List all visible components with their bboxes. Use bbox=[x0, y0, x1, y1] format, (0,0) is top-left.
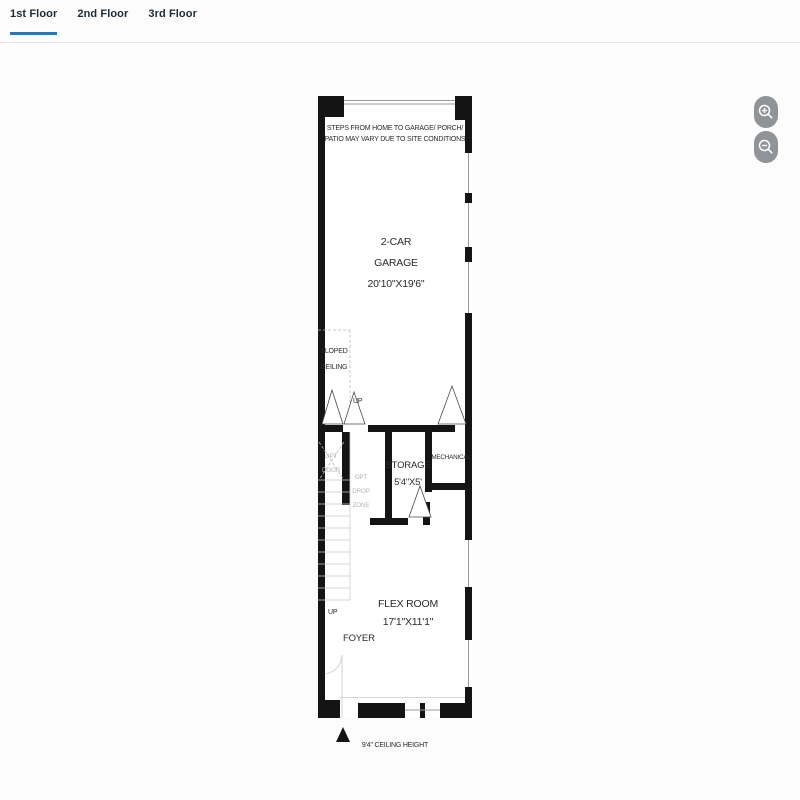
zoom-out-icon bbox=[757, 138, 775, 156]
garage-dimensions: 20'10"X19'6" bbox=[368, 278, 425, 290]
zoom-in-button[interactable] bbox=[754, 96, 778, 128]
foyer-label: FOYER bbox=[343, 633, 375, 644]
garage-label-line2: GARAGE bbox=[374, 257, 418, 269]
ceiling-height-label: 9'4" CEILING HEIGHT bbox=[362, 742, 429, 749]
entry-arrow bbox=[336, 727, 350, 742]
opt-drop-zone-label-line2: DROP bbox=[352, 488, 369, 495]
floorplan-canvas: STEPS FROM HOME TO GARAGE/ PORCH/ PATIO … bbox=[300, 90, 480, 755]
disclaimer-line2: PATIO MAY VARY DUE TO SITE CONDITIONS bbox=[325, 136, 466, 143]
up-label-garage: UP bbox=[353, 398, 363, 405]
zoom-out-button[interactable] bbox=[754, 131, 778, 163]
opt-door-label-line1: OPT bbox=[325, 453, 338, 460]
sloped-ceiling-label-line2: CEILING bbox=[321, 364, 348, 371]
flex-room-label: FLEX ROOM bbox=[378, 598, 438, 610]
tab-2nd-floor[interactable]: 2nd Floor bbox=[77, 8, 128, 32]
up-label-foyer: UP bbox=[328, 609, 338, 616]
tab-1st-floor[interactable]: 1st Floor bbox=[10, 8, 57, 32]
sloped-ceiling-label-line1: SLOPED bbox=[320, 348, 347, 355]
opt-drop-zone-label-line1: OPT bbox=[355, 474, 368, 481]
tab-bar-divider bbox=[0, 42, 800, 43]
storage-dimensions: 5'4"X5' bbox=[394, 477, 422, 488]
garage-label-line1: 2-CAR bbox=[381, 236, 412, 248]
disclaimer-line1: STEPS FROM HOME TO GARAGE/ PORCH/ bbox=[327, 125, 464, 132]
flex-room-dimensions: 17'1"X11'1" bbox=[383, 616, 434, 628]
floorplan-svg: STEPS FROM HOME TO GARAGE/ PORCH/ PATIO … bbox=[300, 90, 480, 755]
zoom-in-icon bbox=[757, 103, 775, 121]
zoom-controls bbox=[754, 96, 778, 163]
mechanical-label: MECHANICAL bbox=[431, 454, 471, 461]
opt-drop-zone-label-line3: ZONE bbox=[353, 502, 370, 509]
storage-label: STORAGE bbox=[386, 460, 431, 471]
tab-3rd-floor[interactable]: 3rd Floor bbox=[148, 8, 197, 32]
opt-door-label-line2: DOOR bbox=[322, 467, 341, 474]
floor-tab-bar: 1st Floor 2nd Floor 3rd Floor bbox=[0, 0, 800, 44]
